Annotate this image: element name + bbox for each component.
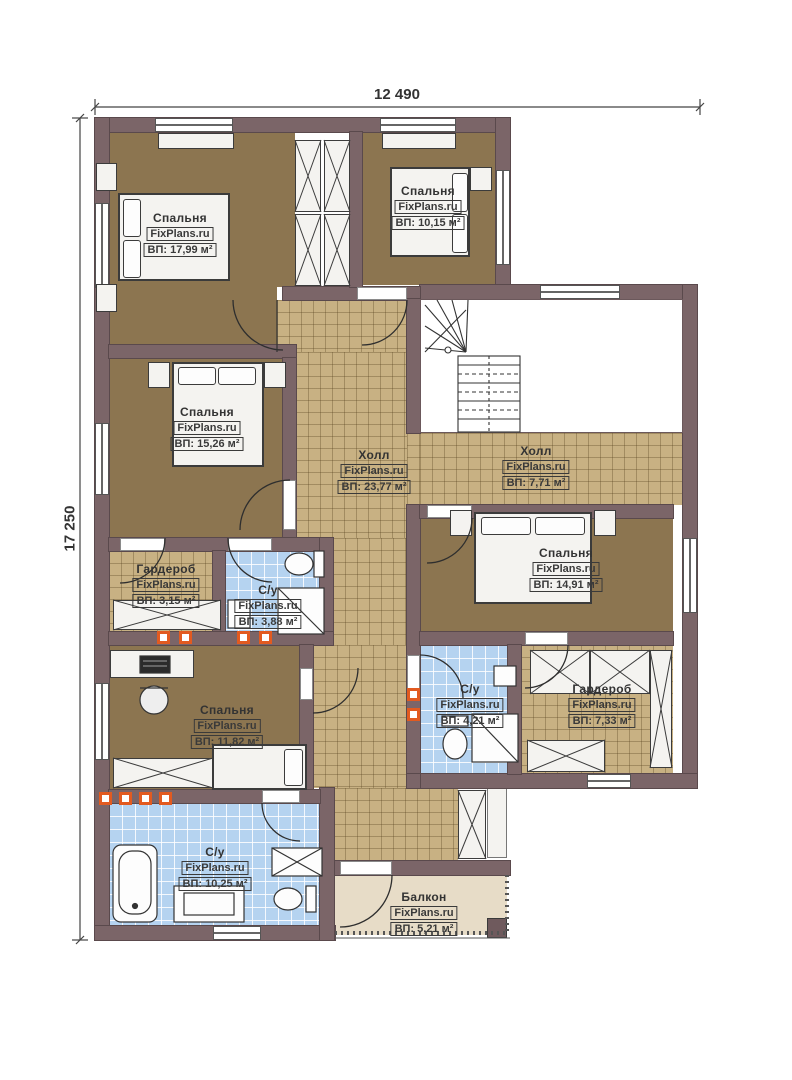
room-name: Холл (502, 444, 569, 458)
room-area: ВП: 14,91 м² (530, 578, 603, 592)
vent-marker (159, 792, 172, 805)
room-label-bedroom-4: Спальня FixPlans.ru ВП: 14,91 м² (530, 546, 603, 592)
room-name: Балкон (390, 890, 457, 904)
vent-marker (119, 792, 132, 805)
vent-marker (179, 631, 192, 644)
floor-plan: 12 490 17 250 Спальня FixPlans.ru ВП: 17… (0, 0, 792, 1080)
stairwell (421, 300, 683, 433)
niche (487, 788, 507, 858)
watermark: FixPlans.ru (394, 200, 461, 214)
room-label-wardrobe-1: Гардероб FixPlans.ru ВП: 3,15 м² (132, 562, 199, 608)
room-name: Гардероб (132, 562, 199, 576)
pillow (123, 240, 141, 278)
room-name: С/у (179, 845, 252, 859)
vent-marker (407, 688, 420, 701)
dimension-width-label: 12 490 (374, 86, 420, 103)
watermark: FixPlans.ru (132, 578, 199, 592)
floor-hall-main (333, 788, 458, 861)
vent-marker (99, 792, 112, 805)
floor-hall-main (296, 352, 407, 538)
room-area: ВП: 11,82 м² (191, 735, 263, 749)
wall (420, 774, 697, 788)
nightstand (594, 510, 616, 536)
wall (320, 538, 333, 645)
room-name: Холл (338, 448, 411, 462)
room-area: ВП: 10,15 м² (392, 216, 465, 230)
wall (407, 774, 420, 788)
nightstand (96, 284, 117, 312)
wall (109, 345, 296, 358)
door-opening (357, 287, 407, 300)
room-area: ВП: 4,21 м² (437, 714, 504, 728)
room-label-bedroom-5: Спальня FixPlans.ru ВП: 11,82 м² (191, 703, 263, 749)
room-name: Спальня (191, 703, 263, 717)
watermark: FixPlans.ru (234, 599, 301, 613)
room-name: Спальня (144, 211, 217, 225)
window (95, 423, 109, 495)
room-area: ВП: 17,99 м² (144, 243, 217, 257)
room-label-hall-main: Холл FixPlans.ru ВП: 23,77 м² (338, 448, 411, 494)
closet (324, 214, 350, 286)
closet (458, 790, 486, 859)
room-name: С/у (436, 682, 503, 696)
watermark: FixPlans.ru (436, 698, 503, 712)
window (587, 774, 631, 788)
room-area: ВП: 3,15 м² (133, 594, 200, 608)
room-area: ВП: 7,71 м² (503, 476, 570, 490)
balcony-door-opening (340, 861, 392, 875)
window (155, 118, 233, 132)
room-area: ВП: 3,88 м² (235, 615, 302, 629)
vent-marker (407, 708, 420, 721)
pillow (218, 367, 256, 385)
room-label-hall-2: Холл FixPlans.ru ВП: 7,71 м² (502, 444, 569, 490)
room-area: ВП: 15,26 м² (171, 437, 244, 451)
pillow (123, 199, 141, 237)
dimension-height-label: 17 250 (62, 489, 79, 569)
floor-hall-main (277, 300, 407, 352)
vent-marker (157, 631, 170, 644)
room-name: Спальня (392, 184, 465, 198)
watermark: FixPlans.ru (181, 861, 248, 875)
wall (320, 788, 334, 940)
window (380, 118, 456, 132)
room-area: ВП: 5,21 м² (391, 922, 458, 936)
wall (683, 285, 697, 774)
desk (110, 650, 194, 678)
sill-cabinet (158, 133, 234, 149)
pillow (481, 517, 531, 535)
door-opening (283, 480, 296, 530)
closet (295, 140, 321, 212)
closet (324, 140, 350, 212)
floor-hall-main (313, 774, 420, 788)
watermark: FixPlans.ru (390, 906, 457, 920)
pillow (178, 367, 216, 385)
vent-marker (139, 792, 152, 805)
door-opening (300, 668, 313, 700)
door-opening (120, 538, 165, 551)
wall (350, 132, 362, 287)
room-label-bath-1: С/у FixPlans.ru ВП: 3,88 м² (234, 583, 301, 629)
watermark: FixPlans.ru (568, 698, 635, 712)
door-opening (228, 538, 272, 551)
closet (650, 650, 672, 768)
nightstand (96, 163, 117, 191)
room-label-balcony: Балкон FixPlans.ru ВП: 5,21 м² (390, 890, 457, 936)
wall (407, 299, 420, 433)
closet (527, 740, 605, 772)
watermark: FixPlans.ru (532, 562, 599, 576)
room-label-bath-2: С/у FixPlans.ru ВП: 4,21 м² (436, 682, 503, 728)
nightstand (470, 167, 492, 191)
wall (508, 645, 521, 774)
window (683, 538, 697, 613)
wall (109, 632, 333, 645)
sill-cabinet (382, 133, 456, 149)
vent-marker (237, 631, 250, 644)
nightstand (264, 362, 286, 388)
room-label-wardrobe-2: Гардероб FixPlans.ru ВП: 7,33 м² (568, 682, 635, 728)
closet (295, 214, 321, 286)
room-area: ВП: 10,25 м² (179, 877, 252, 891)
door-opening (525, 632, 568, 645)
watermark: FixPlans.ru (173, 421, 240, 435)
watermark: FixPlans.ru (502, 460, 569, 474)
vent-marker (259, 631, 272, 644)
room-label-bedroom-2: Спальня FixPlans.ru ВП: 10,15 м² (392, 184, 465, 230)
watermark: FixPlans.ru (193, 719, 260, 733)
room-name: Спальня (171, 405, 244, 419)
room-area: ВП: 23,77 м² (338, 480, 411, 494)
closet (113, 758, 213, 788)
watermark: FixPlans.ru (146, 227, 213, 241)
room-area: ВП: 7,33 м² (569, 714, 636, 728)
nightstand (450, 510, 472, 536)
room-name: Гардероб (568, 682, 635, 696)
window (95, 203, 109, 288)
sill-cabinet (540, 299, 620, 312)
watermark: FixPlans.ru (340, 464, 407, 478)
window (496, 170, 510, 265)
room-label-bedroom-1: Спальня FixPlans.ru ВП: 17,99 м² (144, 211, 217, 257)
window (95, 683, 109, 760)
staircase (425, 300, 520, 432)
pillow (535, 517, 585, 535)
door-opening (262, 790, 300, 803)
balcony-pillar (487, 918, 507, 938)
window (213, 926, 261, 940)
wall (407, 505, 420, 774)
floor-hall-main (313, 645, 407, 774)
window (540, 285, 620, 299)
nightstand (148, 362, 170, 388)
pillow (284, 749, 303, 786)
room-name: С/у (234, 583, 301, 597)
room-label-bath-3: С/у FixPlans.ru ВП: 10,25 м² (179, 845, 252, 891)
floor-hall-main (333, 538, 407, 645)
floor-bedroom-1 (109, 287, 277, 352)
room-name: Спальня (530, 546, 603, 560)
room-label-bedroom-3: Спальня FixPlans.ru ВП: 15,26 м² (171, 405, 244, 451)
